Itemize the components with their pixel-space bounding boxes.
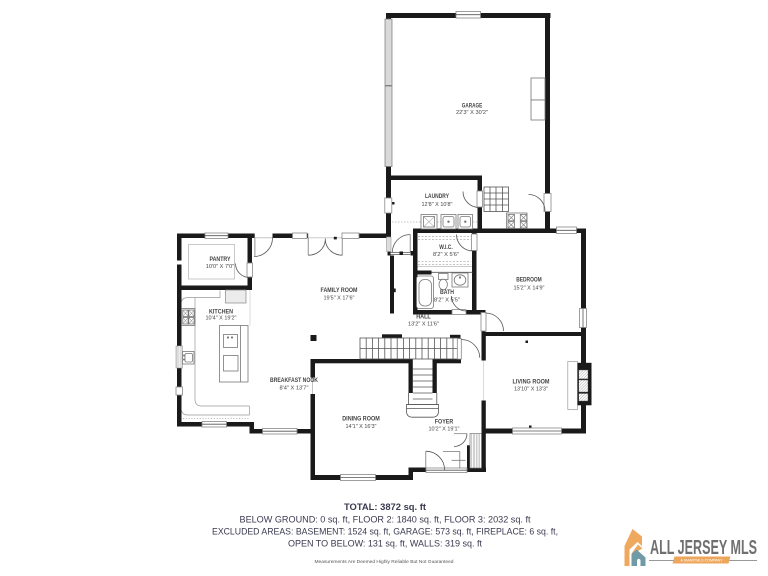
svg-text:22'3" X 30'2": 22'3" X 30'2" (456, 110, 488, 116)
svg-text:DINING ROOM: DINING ROOM (342, 416, 380, 423)
svg-text:W.I.C.: W.I.C. (439, 244, 453, 251)
svg-text:A SMARTMLS COMPANY: A SMARTMLS COMPANY (680, 559, 723, 563)
svg-text:13'10" X 13'3": 13'10" X 13'3" (514, 387, 548, 393)
svg-text:8'2" X 5'6": 8'2" X 5'6" (433, 252, 459, 258)
svg-text:ALL JERSEY MLS: ALL JERSEY MLS (650, 536, 757, 559)
svg-text:BELOW GROUND: 0 sq. ft, FLOOR: BELOW GROUND: 0 sq. ft, FLOOR 2: 1840 sq… (240, 514, 531, 525)
svg-text:OPEN TO BELOW: 131 sq. ft, WAL: OPEN TO BELOW: 131 sq. ft, WALLS: 319 sq… (288, 538, 482, 549)
svg-text:PANTRY: PANTRY (210, 256, 232, 263)
svg-text:BATH: BATH (440, 289, 454, 296)
svg-text:10'0" X 7'0": 10'0" X 7'0" (206, 264, 235, 270)
svg-text:TOTAL: 3872 sq. ft: TOTAL: 3872 sq. ft (344, 502, 427, 513)
svg-text:FAMILY ROOM: FAMILY ROOM (321, 287, 358, 294)
svg-text:10'4" X 19'2": 10'4" X 19'2" (206, 316, 237, 322)
svg-text:BREAKFAST NOOK: BREAKFAST NOOK (270, 377, 318, 384)
svg-text:12'8" X 10'8": 12'8" X 10'8" (422, 202, 453, 208)
svg-text:Measurements Are Deemed Highly: Measurements Are Deemed Highly Reliable … (315, 559, 454, 565)
svg-text:13'2" X 11'6": 13'2" X 11'6" (408, 322, 439, 328)
svg-text:FOYER: FOYER (435, 419, 454, 426)
svg-text:8'2" X 5'5": 8'2" X 5'5" (434, 298, 460, 304)
svg-text:15'2" X 14'9": 15'2" X 14'9" (514, 286, 545, 292)
svg-text:19'5" X 17'6": 19'5" X 17'6" (324, 296, 355, 302)
svg-text:LAUNDRY: LAUNDRY (425, 193, 450, 200)
svg-text:BEDROOM: BEDROOM (516, 277, 542, 284)
svg-text:GARAGE: GARAGE (462, 103, 483, 110)
svg-text:LIVING ROOM: LIVING ROOM (513, 379, 550, 386)
svg-text:14'1" X 16'3": 14'1" X 16'3" (346, 424, 377, 430)
svg-text:EXCLUDED AREAS: BASEMENT: 1524: EXCLUDED AREAS: BASEMENT: 1524 sq. ft, G… (212, 526, 558, 537)
svg-text:KITCHEN: KITCHEN (209, 309, 233, 316)
svg-text:HALL: HALL (416, 314, 431, 321)
svg-text:10'2" X 19'1": 10'2" X 19'1" (429, 427, 460, 433)
svg-text:8'4" X 13'7": 8'4" X 13'7" (280, 386, 309, 392)
